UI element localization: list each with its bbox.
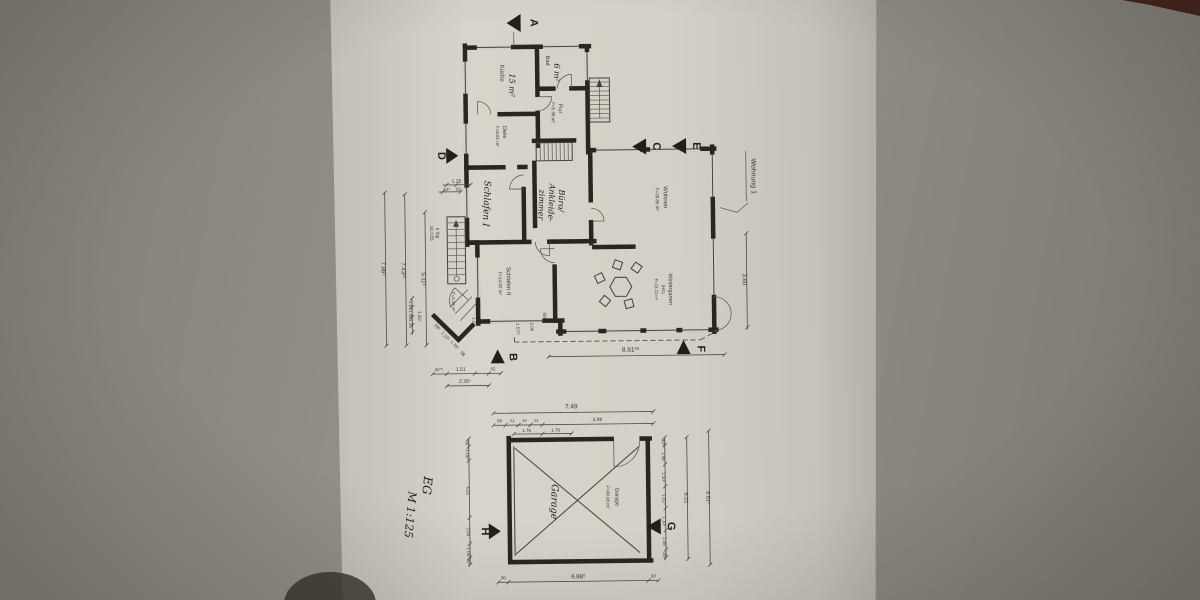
dim-text: 3.60 — [741, 273, 747, 285]
room-label-kueche: Küche — [498, 65, 504, 83]
room-area-bad: 6 m² — [552, 63, 561, 82]
dim-text: 42 — [490, 366, 496, 371]
dim-text: 6.61⁵ — [704, 491, 711, 504]
room-area-schlafen2: F=14.82 m² — [498, 272, 503, 296]
room-label-garage-handwritten: Garage — [548, 484, 560, 520]
room-label-buero-line1: Büro/ — [556, 188, 566, 213]
dim-text: 1.25 — [452, 179, 462, 185]
room-label-diele: Diele — [501, 126, 507, 139]
dim-text: 1.36⁵ — [417, 311, 422, 322]
room-area-entry: F=3.48 m² — [451, 292, 456, 312]
room-label-wohnen: Wohnen — [662, 186, 668, 208]
stair-note-line2: 18,7/25 — [429, 226, 434, 242]
dim-text: 1.49 — [662, 537, 667, 546]
dim-text: 5.11⁵ — [420, 272, 427, 286]
dim-text: 42⁵ — [443, 187, 450, 192]
room-label-schlafen2: Schlafen II — [505, 267, 511, 296]
dim-text: 6.88⁵ — [571, 573, 586, 580]
dim-text: 1.61⁵ — [661, 494, 666, 505]
room-area-wintergarten: F=23.22 m² — [654, 279, 659, 301]
dim-text: 1.76 — [522, 428, 531, 433]
dim-text: 30²⁵ — [466, 558, 471, 567]
room-label-wintergarten: Wintergarten — [667, 273, 673, 305]
dim-text: 82 — [456, 187, 462, 192]
room-area-kueche: 15 m² — [507, 73, 517, 97]
dim-text: 1.05⁵ — [465, 449, 470, 460]
section-letter-b: B — [507, 353, 519, 361]
dim-text: 2.36⁵ — [459, 379, 471, 385]
dim-text: 60¹ — [542, 312, 547, 319]
section-letter-e: E — [690, 142, 702, 149]
dim-text: 1.49 — [661, 452, 666, 461]
section-letter-a: A — [528, 19, 540, 27]
dim-text: 8.91²⁵ — [622, 347, 640, 354]
dim-text: 1.25 — [408, 319, 413, 328]
dim-text: 7.49 — [565, 403, 578, 410]
photo-of-floor-plan: 7.86⁵ 7.43²⁵ 5.11⁵ 1.01 1.49 1.25 1.36⁵ … — [0, 0, 1200, 600]
stair-note-line1: 6 Stg — [435, 228, 440, 239]
room-label-buero-line2: Ankleide- — [546, 183, 557, 223]
room-label-schlafen1: Schlafen I — [480, 180, 492, 227]
room-label-buero-line3: zimmer — [536, 188, 546, 221]
dim-text: 2.00 — [529, 322, 534, 331]
dim-text: 1.01 — [408, 301, 413, 310]
floor-plan-drawing: 7.86⁵ 7.43²⁵ 5.11⁵ 1.01 1.49 1.25 1.36⁵ … — [0, 0, 1200, 600]
section-letter-c: C — [650, 142, 662, 150]
dim-text: 1.05⁵ — [466, 547, 471, 558]
dim-text: 4.99 — [593, 417, 603, 423]
dim-text: 30⁵ — [661, 439, 666, 446]
room-area-wohnen: F=28.85 m² — [655, 188, 660, 212]
dim-text: 30²⁵ — [662, 552, 667, 561]
dim-text: 1.49 — [408, 310, 413, 319]
wohnung-label: Wohnung 1 — [749, 158, 756, 194]
dim-text: 1.76 — [551, 428, 560, 433]
dim-text: 1.10¹ — [661, 472, 666, 483]
wood-table-corner — [1122, 0, 1200, 16]
room-sub-wintergarten: (HG) — [661, 285, 666, 295]
dim-text: 42⁷⁵ — [435, 367, 444, 372]
section-letter-g: G — [665, 522, 677, 531]
room-label-garage: Garage — [613, 488, 619, 506]
dim-text: 7.43²⁵ — [400, 262, 407, 279]
dim-text: 6.01 — [682, 493, 688, 504]
sheet-label: EG — [419, 475, 435, 496]
section-letter-h: H — [479, 527, 491, 535]
dim-text: 30 — [501, 575, 507, 580]
dim-text: 2.03 — [466, 527, 471, 536]
dim-text: 30 — [651, 573, 657, 578]
dim-text: 99 — [497, 418, 503, 423]
dim-text: 7.86⁵ — [380, 262, 387, 277]
room-label-bad: Bad — [544, 56, 550, 66]
dim-text: 1.57²⁵ — [515, 323, 520, 335]
dim-text: 1.00 — [471, 317, 476, 326]
section-letter-f: F — [695, 345, 707, 352]
dim-text: 30 — [465, 440, 470, 446]
room-area-garage: F=49.38 m² — [605, 485, 610, 509]
room-area-diele: F=8.81 m² — [495, 126, 500, 147]
paper-sheet: 7.86⁵ 7.43²⁵ 5.11⁵ 1.01 1.49 1.25 1.36⁵ … — [330, 0, 883, 600]
room-area-flur: F=5.98 m² — [551, 102, 556, 123]
room-label-flur: Flur — [557, 104, 563, 114]
dim-text: 1.51 — [456, 367, 466, 373]
section-letter-d: D — [435, 152, 447, 160]
dim-text: 4.51 — [465, 486, 470, 495]
